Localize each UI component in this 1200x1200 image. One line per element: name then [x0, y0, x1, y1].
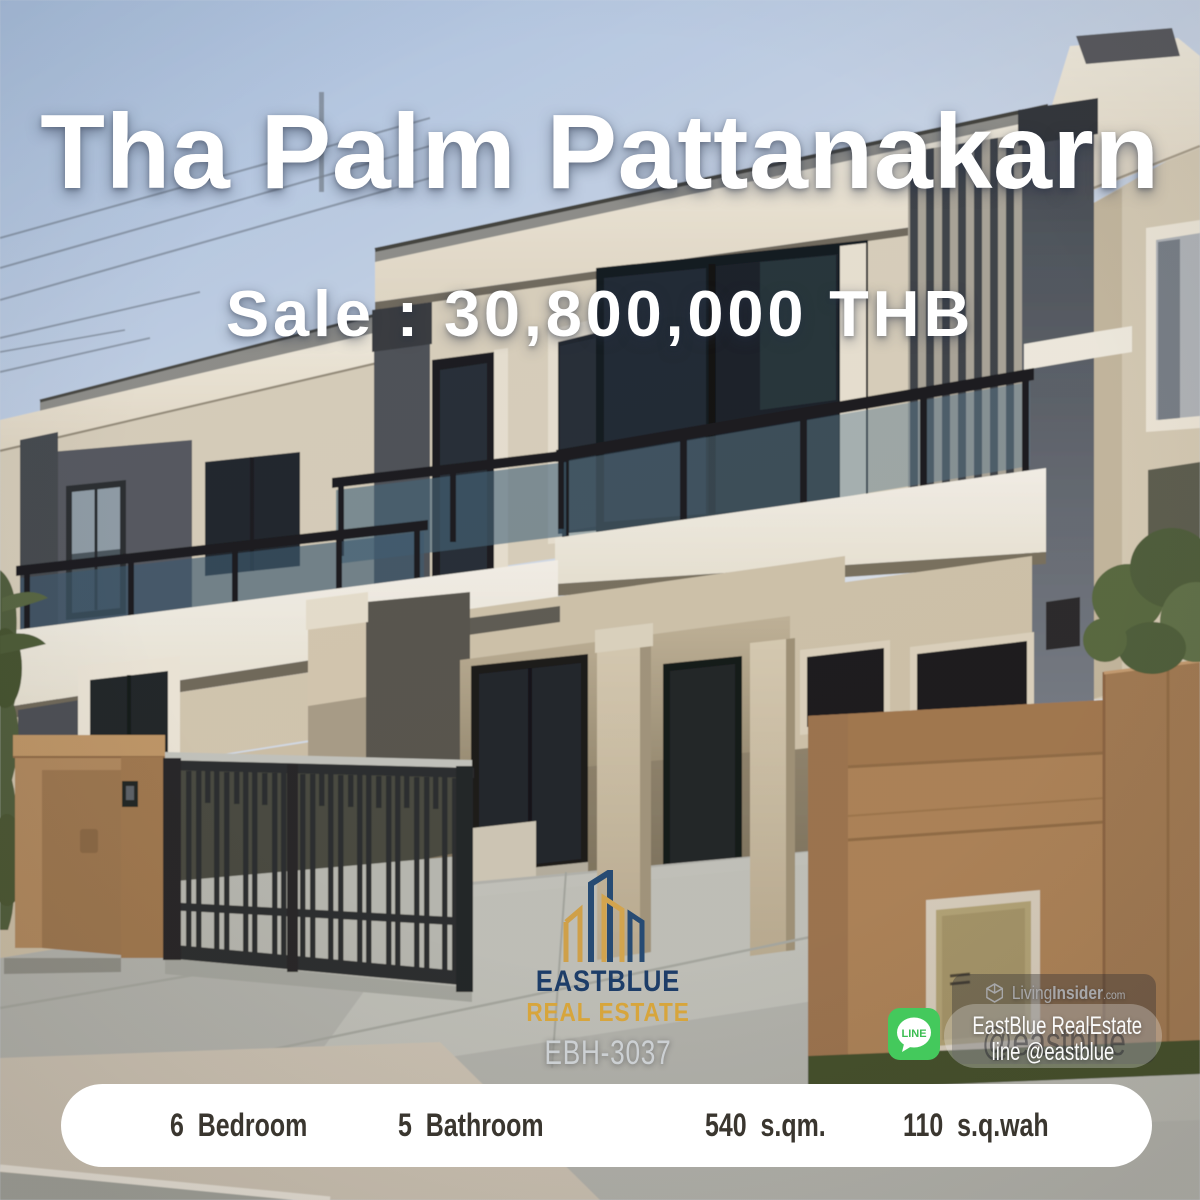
svg-text:LINE: LINE	[901, 1028, 926, 1040]
